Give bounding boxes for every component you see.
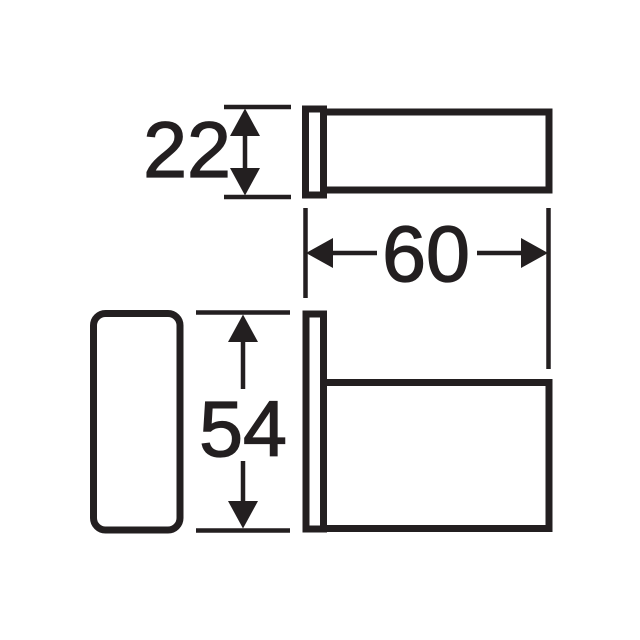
- hook-dimension-diagram: 22 60 54: [0, 0, 640, 640]
- dimension-label-60: 60: [382, 209, 470, 298]
- hook-arm-top-outline: [322, 112, 549, 190]
- top-view: [306, 109, 550, 195]
- dimension-label-54: 54: [199, 384, 287, 473]
- technical-drawing-canvas: 22 60 54: [0, 0, 640, 640]
- arrow-down-head: [228, 501, 258, 529]
- arrow-left-head: [306, 238, 333, 268]
- dimension-54: 54: [196, 313, 290, 531]
- arrow-up-head: [228, 315, 258, 343]
- front-view: [94, 314, 181, 531]
- arrow-right-head: [521, 238, 548, 268]
- wall-plate-top-outline: [306, 109, 324, 195]
- wall-plate-front-outline: [94, 314, 181, 531]
- dimension-60: 60: [306, 208, 549, 369]
- side-view: [306, 314, 549, 529]
- arrow-up-head: [230, 109, 260, 137]
- wall-plate-side-outline: [306, 314, 324, 529]
- dimension-22: 22: [143, 105, 291, 197]
- hook-arm-side-outline: [322, 383, 549, 529]
- arrow-down-head: [230, 168, 260, 196]
- dimension-label-22: 22: [143, 105, 231, 194]
